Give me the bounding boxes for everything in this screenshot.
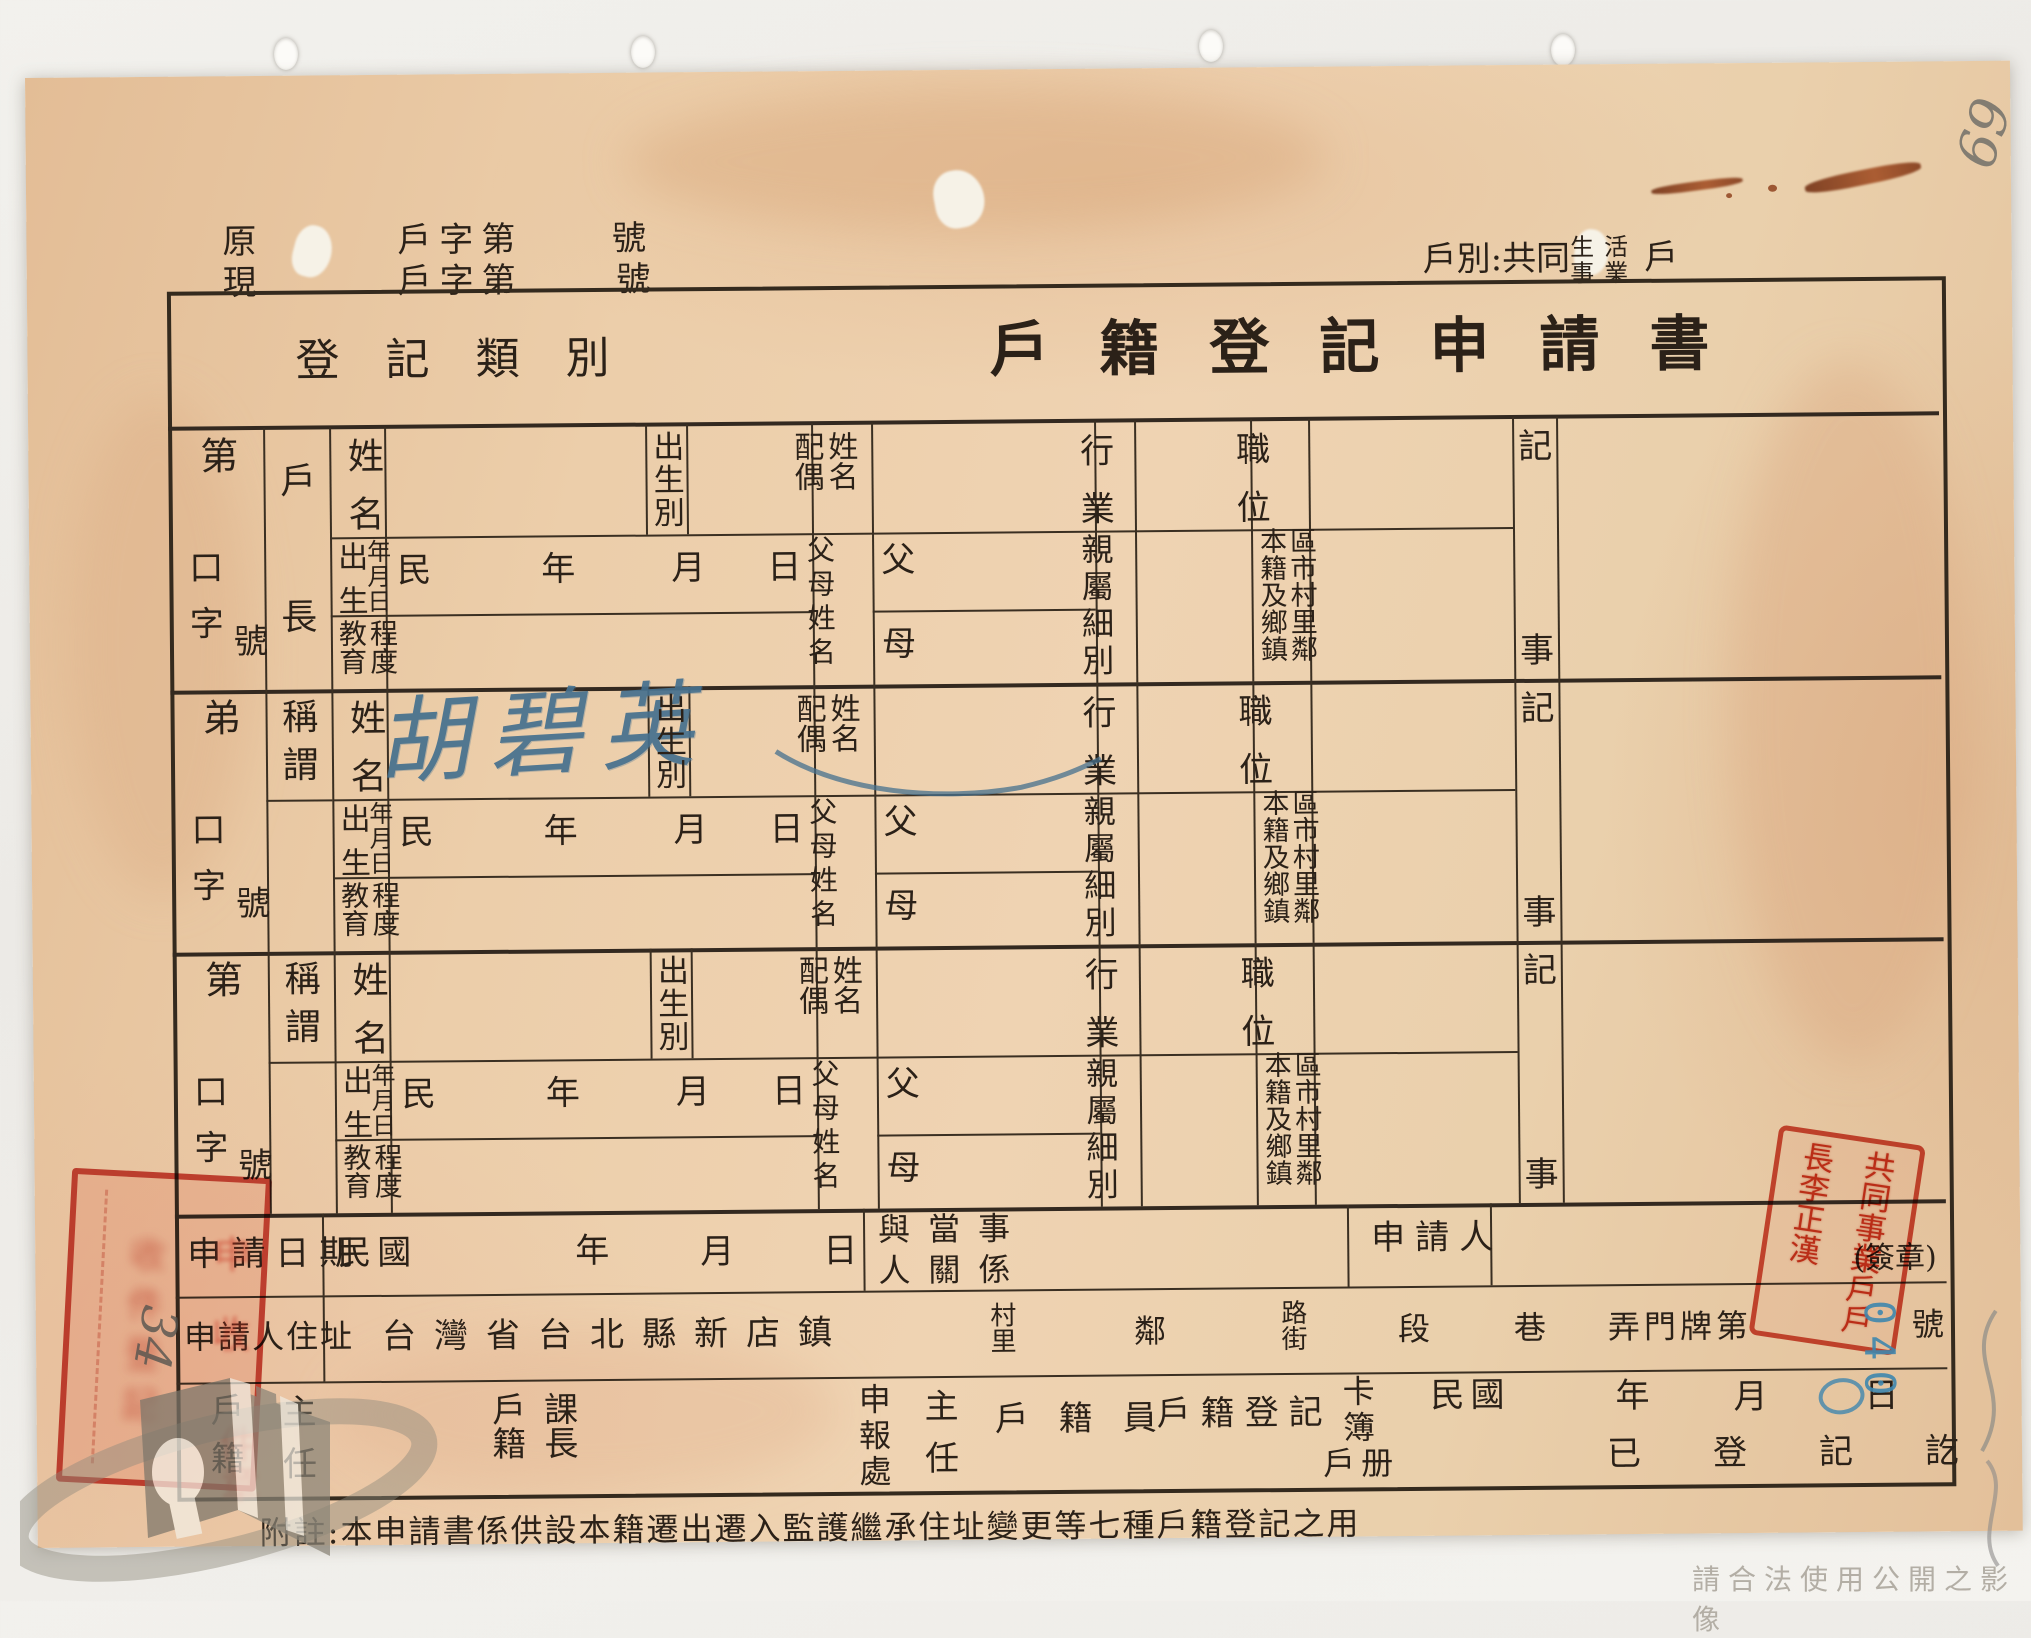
section-seq-prefix: 第: [200, 436, 238, 478]
origin-label: 本籍及鄉鎮區市村里鄰: [1260, 1051, 1321, 1200]
month-char: 月: [673, 812, 707, 850]
person-section: 第 口 字 號 戶長 姓名 出生別 配偶姓名 行業 職位 出生 年月日 民 年 …: [168, 413, 1941, 694]
grid-line: [335, 1051, 1518, 1063]
father-label: 父: [881, 542, 915, 580]
father-label: 父: [886, 1066, 920, 1104]
section-unit-char: 口: [191, 812, 225, 850]
address-road: 路街: [1279, 1299, 1305, 1351]
grid-line: [875, 871, 1098, 875]
original-doc-no-row: 原 戶字第 號: [222, 221, 646, 262]
kinship-label: 親屬細別: [1082, 1057, 1118, 1205]
birth-order-label: 出生別: [653, 954, 688, 1053]
punch-hole: [1199, 30, 1223, 62]
era-char: 民: [402, 1076, 436, 1114]
punch-hole: [631, 36, 655, 68]
education-label: 教育程度: [336, 619, 399, 682]
registered-year: 年: [1615, 1378, 1649, 1416]
person-sections: [25, 61, 2010, 78]
origin-label: 本籍及鄉鎮區市村里鄰: [1255, 527, 1316, 676]
grid-line: [1556, 417, 1560, 679]
rust-dot: [1768, 185, 1777, 192]
grid-line: [1136, 682, 1140, 944]
registry-section-chief-label: 戶籍課長: [479, 1391, 584, 1472]
mother-label: 母: [886, 1150, 920, 1188]
apply-month: 月: [700, 1234, 734, 1272]
name-field-label: 姓名: [342, 437, 383, 553]
rust-dot: [1726, 193, 1732, 198]
day-char: 日: [772, 1073, 806, 1111]
parents-name-label: 父母姓名: [803, 535, 835, 671]
section-role-label: 稱謂: [279, 959, 319, 1055]
month-char: 月: [671, 550, 705, 588]
household-type-tail: 戶: [1644, 238, 1678, 278]
form-title: 戶籍登記申請書: [989, 311, 1760, 384]
era-char: 民: [399, 814, 433, 852]
apply-day: 日: [823, 1233, 857, 1271]
grid-line: [333, 873, 815, 879]
office-chief-label: 主任: [918, 1388, 956, 1492]
birthdate-label-right: 年月日: [368, 1063, 395, 1138]
grid-line: [686, 424, 689, 534]
birth-order-label: 出生別: [648, 430, 683, 529]
record-label-top: 記: [1523, 953, 1557, 991]
relation-label-line2: 人關係: [878, 1252, 1028, 1288]
grid-line: [876, 947, 880, 1209]
section-unit-char: 口: [194, 1074, 228, 1112]
address-printed-region: 台灣省台北縣新店鎮: [382, 1315, 850, 1356]
name-field-label: 姓名: [347, 961, 388, 1077]
grid-line: [330, 527, 1513, 539]
section-seq-prefix: 第: [205, 960, 243, 1002]
stamp-mark: 收: [212, 1304, 250, 1359]
mother-label: 母: [884, 888, 918, 926]
relation-label-line1: 與當事: [878, 1211, 1028, 1247]
grid-line: [266, 799, 332, 802]
education-label: 教育程度: [340, 1143, 403, 1206]
birth-order-label: 出生別: [650, 692, 685, 791]
record-label-bottom: 事: [1524, 1157, 1558, 1195]
address-lane: 巷: [1514, 1311, 1546, 1346]
punch-hole: [274, 38, 298, 70]
section-no-char: 號: [234, 624, 268, 662]
era-char: 民: [397, 552, 431, 590]
usage-watermark-text: 請合法使用公開之影像: [1692, 1558, 2031, 1638]
section-unit-char2: 字: [192, 868, 226, 906]
address-village: 村里: [988, 1301, 1014, 1353]
industry-label: 行業: [1079, 957, 1117, 1073]
grid-line: [269, 1061, 335, 1064]
address-section: 段: [1398, 1312, 1430, 1347]
registered-era: 民國: [1430, 1377, 1510, 1415]
spouse-name-label: 配偶姓名: [793, 955, 862, 1026]
origin-label: 本籍及鄉鎮區市村里鄰: [1257, 789, 1318, 938]
book-label: 戶册: [1323, 1446, 1399, 1482]
record-label-top: 記: [1520, 691, 1554, 729]
grid-line: [1558, 679, 1562, 941]
pencil-squiggle: [1941, 1300, 2031, 1581]
apply-year: 年: [575, 1233, 609, 1271]
grid-line: [1514, 679, 1518, 941]
pencil-number-69: 69: [1942, 90, 2023, 174]
applicant-label: 申請人: [1371, 1219, 1503, 1258]
stamp-mark: 申: [213, 1224, 251, 1279]
apply-era: 民國: [337, 1235, 417, 1273]
record-label-bottom: 事: [1520, 633, 1554, 671]
scanned-form-paper: 原 戶字第 號 現 戶字第 號 戶別:共同生活事業戶 69 登記類別 戶籍登記申…: [25, 61, 2023, 1548]
birthdate-label-right: 年月日: [365, 801, 392, 876]
grid-line: [1134, 420, 1138, 682]
birthdate-label-right: 年月日: [363, 539, 390, 614]
registration-label: 戶籍登記: [1157, 1395, 1333, 1434]
punch-hole: [1551, 34, 1575, 66]
doc-no-prefix: 原: [222, 222, 256, 262]
grid-line: [331, 611, 813, 617]
report-office-label: 申報處: [854, 1383, 890, 1491]
address-gate: 弄門牌第: [1608, 1309, 1752, 1345]
kinship-label: 親屬細別: [1077, 533, 1113, 681]
section-unit-char: 口: [189, 550, 223, 588]
household-type-lead: 戶別:共同: [1422, 239, 1570, 280]
doc-no-label: 戶字第: [397, 220, 523, 261]
year-char: 年: [543, 813, 577, 851]
registered-month: 月: [1733, 1379, 1767, 1417]
registration-category-label: 登記類別: [295, 335, 655, 387]
parents-name-label: 父母姓名: [808, 1059, 840, 1195]
grid-line: [1139, 944, 1143, 1206]
archive-watermark-logo: [20, 1360, 440, 1590]
address-number-suffix: 號: [1912, 1307, 1944, 1342]
grid-line: [877, 1133, 1100, 1137]
grid-line: [691, 948, 694, 1058]
card-label: 卡簿: [1338, 1374, 1374, 1446]
day-char: 日: [767, 549, 801, 587]
doc-no-suffix: 號: [612, 219, 646, 259]
paper-damage-patch: [929, 166, 989, 232]
month-char: 月: [676, 1074, 710, 1112]
grid-line: [871, 423, 875, 685]
record-label-bottom: 事: [1522, 895, 1556, 933]
spouse-name-label: 配偶姓名: [788, 431, 857, 502]
industry-label: 行業: [1074, 433, 1112, 549]
section-unit-char2: 字: [194, 1130, 228, 1168]
section-no-char: 號: [236, 886, 270, 924]
grid-line: [1517, 941, 1521, 1203]
year-char: 年: [541, 551, 575, 589]
section-unit-char2: 字: [190, 606, 224, 644]
grid-line: [873, 609, 1096, 613]
section-role-label: 稱謂: [276, 697, 316, 793]
blue-stamp-number: 040: [1864, 1300, 1905, 1420]
person-section: 第 口 字 號 稱謂 姓名 出生別 配偶姓名 行業 職位 出生 年月日 民 年 …: [173, 937, 1946, 1218]
mother-label: 母: [882, 626, 916, 664]
education-label: 教育程度: [338, 881, 401, 944]
signature-flourish: [771, 729, 1112, 822]
rust-streak: [1804, 158, 1923, 196]
grid-line: [335, 1135, 817, 1141]
address-neighbor: 鄰: [1134, 1314, 1166, 1349]
grid-line: [1561, 941, 1565, 1203]
grid-line: [1512, 417, 1516, 679]
record-label-top: 記: [1518, 429, 1552, 467]
year-char: 年: [546, 1075, 580, 1113]
section-seq-prefix: 弟: [202, 698, 240, 740]
